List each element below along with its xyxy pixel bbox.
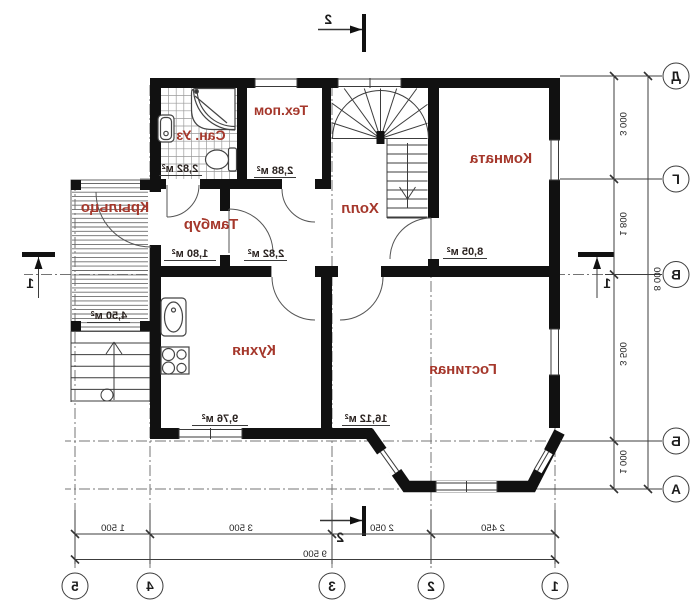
svg-text:8,05 м2: 8,05 м2 [447, 246, 484, 258]
svg-text:3 000: 3 000 [617, 112, 628, 136]
svg-text:Крыльцо: Крыльцо [81, 199, 149, 216]
svg-text:Гостиная: Гостиная [429, 361, 497, 378]
svg-text:2 050: 2 050 [370, 523, 394, 534]
svg-text:1 800: 1 800 [617, 212, 628, 236]
svg-text:Сан. Уз: Сан. Уз [176, 127, 225, 143]
svg-text:9,76 м2: 9,76 м2 [202, 413, 239, 425]
svg-text:Б: Б [671, 434, 681, 449]
svg-text:2,82 м2: 2,82 м2 [248, 248, 285, 260]
svg-text:1: 1 [551, 579, 559, 594]
svg-text:3 500: 3 500 [229, 523, 253, 534]
svg-text:2: 2 [324, 12, 332, 27]
svg-text:3 500: 3 500 [617, 342, 628, 366]
svg-text:2: 2 [427, 579, 435, 594]
svg-text:В: В [671, 268, 681, 283]
svg-text:3: 3 [328, 579, 336, 594]
svg-text:16,12 м2: 16,12 м2 [345, 413, 388, 425]
svg-text:А: А [671, 482, 681, 497]
svg-text:Холл: Холл [341, 200, 379, 217]
svg-text:1 500: 1 500 [101, 523, 125, 534]
svg-text:8 000: 8 000 [651, 267, 662, 291]
svg-text:Г: Г [672, 172, 680, 187]
svg-text:1 000: 1 000 [617, 450, 628, 474]
svg-text:Комната: Комната [469, 150, 532, 167]
svg-text:2: 2 [336, 530, 344, 545]
svg-text:Д: Д [671, 69, 681, 84]
svg-text:1: 1 [26, 276, 34, 291]
svg-text:4: 4 [146, 579, 154, 594]
svg-text:2,82 м2: 2,82 м2 [162, 163, 199, 175]
svg-text:4,50 м2: 4,50 м2 [91, 310, 128, 322]
svg-text:1,80 м2: 1,80 м2 [172, 248, 209, 260]
svg-text:Тамбур: Тамбур [184, 216, 238, 233]
svg-text:9 500: 9 500 [303, 549, 327, 560]
svg-text:2 450: 2 450 [481, 523, 505, 534]
svg-text:Тех.пом: Тех.пом [254, 102, 308, 118]
svg-text:1: 1 [603, 276, 611, 291]
svg-text:2,88 м2: 2,88 м2 [257, 165, 294, 177]
svg-text:Кухня: Кухня [232, 342, 276, 359]
svg-text:5: 5 [71, 579, 79, 594]
